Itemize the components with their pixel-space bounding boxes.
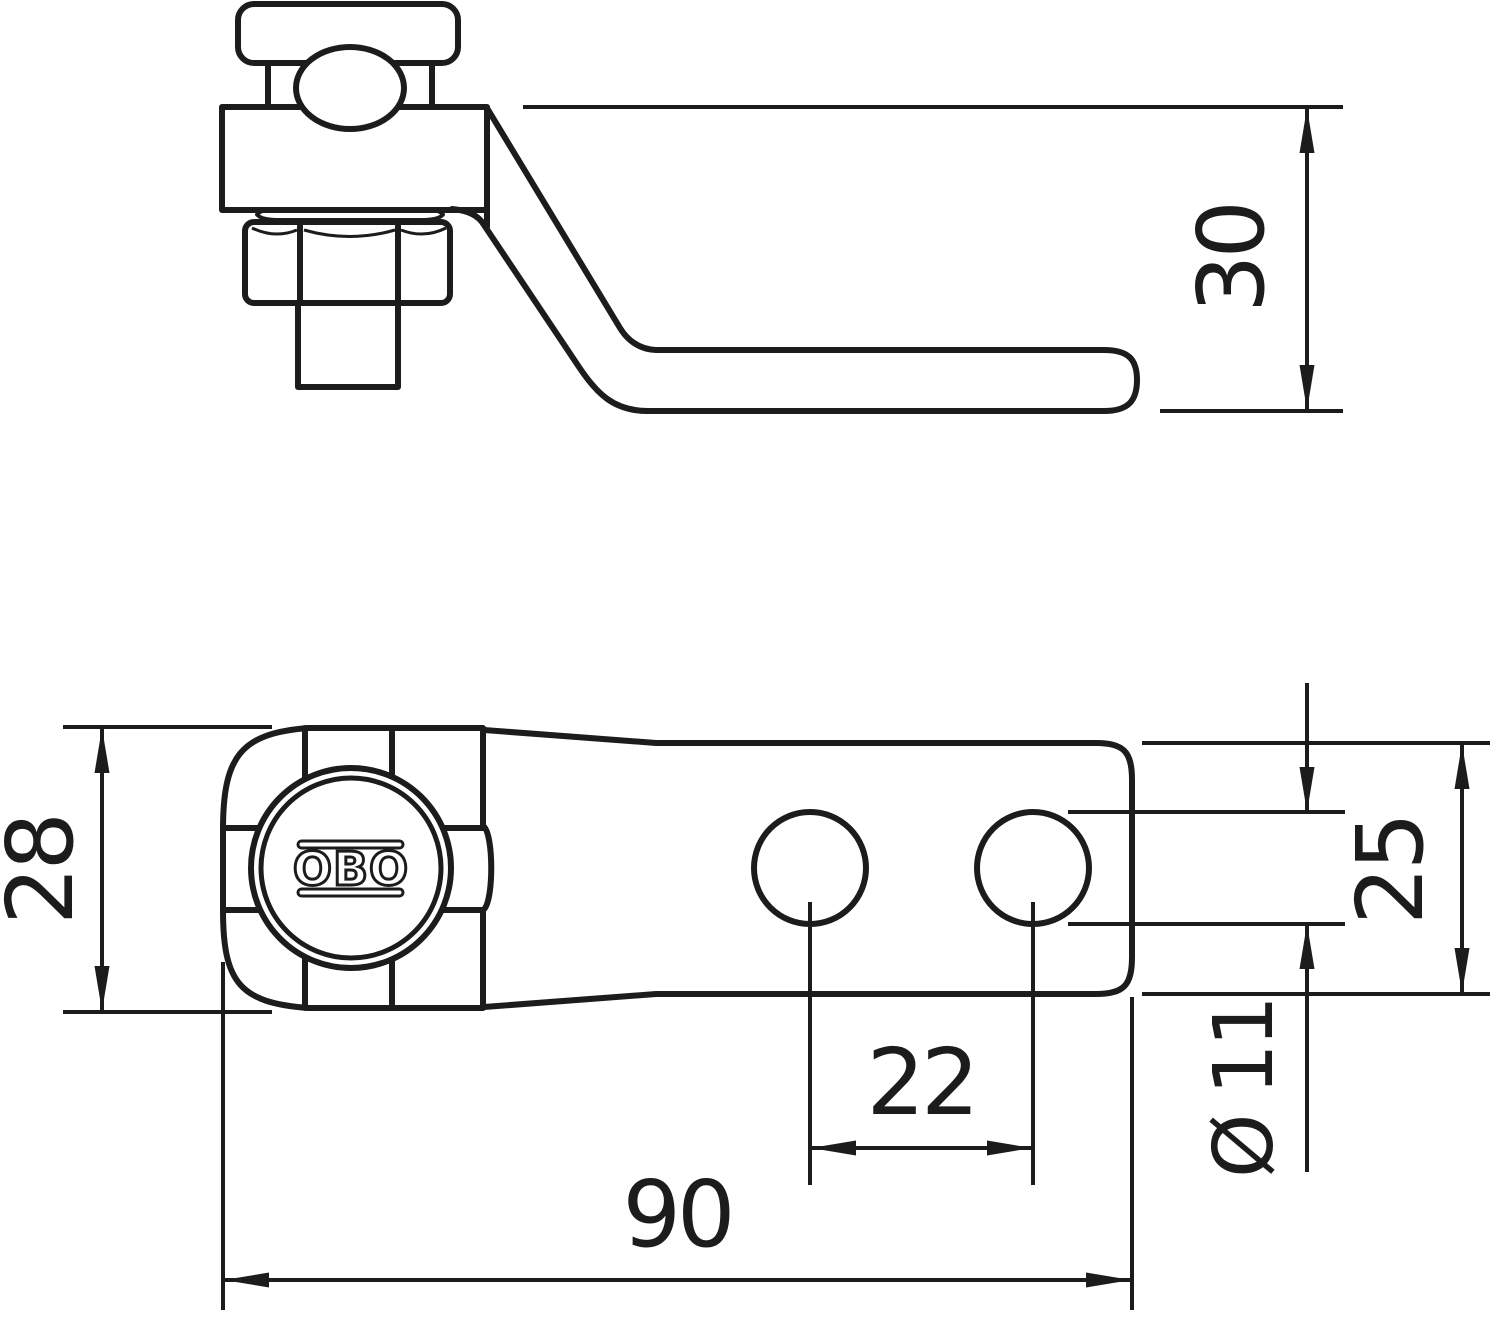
wing-ball (296, 47, 404, 129)
arrowhead-up (1300, 924, 1315, 969)
dimension-plate-width: 25 (1142, 743, 1490, 994)
arrowhead-left (224, 1273, 269, 1288)
arrowhead-right (987, 1141, 1032, 1156)
dimension-hole-spacing: 22 (810, 1029, 1033, 1156)
dimension-value: 90 (622, 1161, 731, 1268)
dimension-value: 22 (866, 1029, 975, 1136)
bracket-arm-outline (452, 108, 1137, 411)
arrowhead-left (811, 1141, 856, 1156)
arrowhead-up (1300, 108, 1315, 153)
arrowhead-down (95, 966, 110, 1011)
bolt-shaft (298, 302, 398, 387)
dimension-value: 30 (1178, 204, 1285, 313)
dimension-bracket-height: 30 (523, 107, 1343, 411)
technical-drawing-page: 30 OBO (0, 0, 1500, 1319)
dimension-hole-diameter: Ø 11 (1068, 683, 1345, 1178)
arrowhead-down (1300, 767, 1315, 812)
dimension-value: 25 (1337, 816, 1444, 925)
side-elevation-view (222, 4, 1137, 411)
technical-drawing: 30 OBO (0, 0, 1500, 1319)
arrowhead-up (1455, 744, 1470, 789)
dimension-overall-length: 90 (223, 962, 1132, 1310)
plan-view: OBO (223, 728, 1132, 1185)
arrowhead-down (1300, 365, 1315, 410)
arrowhead-down (1455, 948, 1470, 993)
dimension-value: Ø 11 (1197, 999, 1292, 1178)
arrowhead-up (95, 728, 110, 773)
brand-logo: OBO (293, 841, 409, 896)
arrowhead-right (1086, 1273, 1131, 1288)
dimension-value: 28 (0, 816, 94, 925)
